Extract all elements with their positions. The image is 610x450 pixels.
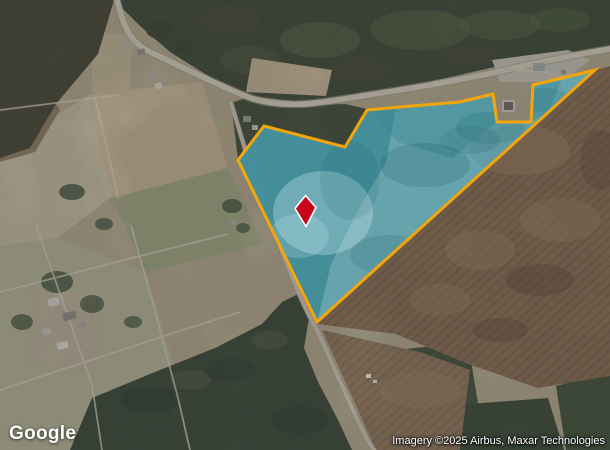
google-logo[interactable]: Google: [9, 423, 76, 445]
imagery-attribution: Imagery ©2025 Airbus, Maxar Technologies: [392, 435, 605, 447]
map-viewport[interactable]: Google Imagery ©2025 Airbus, Maxar Techn…: [0, 0, 610, 450]
satellite-imagery[interactable]: [0, 0, 610, 450]
